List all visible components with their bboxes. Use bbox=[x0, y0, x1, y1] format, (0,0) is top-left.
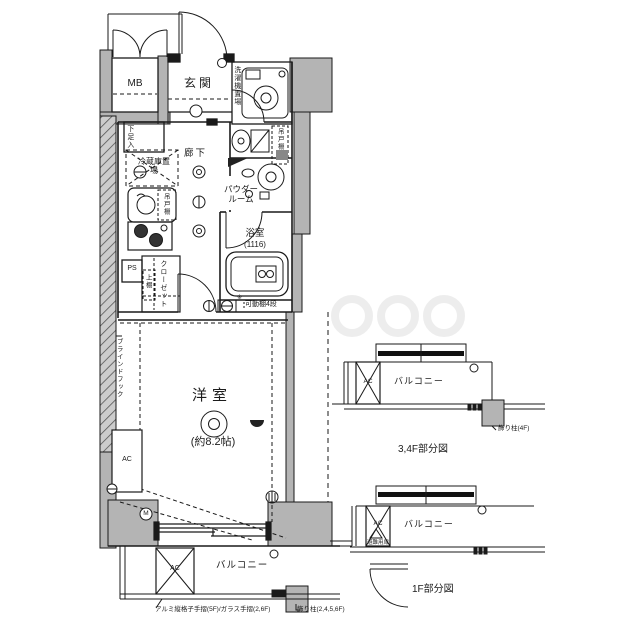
watermark bbox=[335, 299, 461, 333]
room-label-balcony: バルコニー bbox=[216, 561, 268, 572]
hatched-wall bbox=[100, 116, 116, 452]
room-label-bathroom: 浴室 bbox=[234, 229, 276, 240]
label-shoe-cabinet: 下足入 bbox=[126, 125, 134, 149]
label-fridge-space: 冷蔵庫置場 bbox=[138, 158, 170, 176]
room-label-western-room: 洋室 bbox=[180, 388, 244, 405]
label-meter-mark: M bbox=[142, 510, 150, 517]
mb-room bbox=[108, 14, 182, 112]
washing-machine-icon bbox=[242, 68, 288, 118]
partial-34f bbox=[332, 344, 545, 430]
stove-icon bbox=[128, 222, 172, 250]
room-label-mb: MB bbox=[112, 78, 158, 89]
note-handrail: アルミ縦格子手摺(5F)/ガラス手摺(2,6F) bbox=[155, 606, 270, 613]
label-pipe-space: PS bbox=[123, 265, 141, 273]
fig34-ac-label: AC bbox=[358, 378, 378, 385]
label-kitchen-hanging-cupboard: 吊戸棚 bbox=[162, 193, 169, 216]
toilet-icon bbox=[232, 130, 269, 152]
fig1-evacuation-door-note: 避難用扉 bbox=[367, 540, 389, 546]
floorplan-page: MB 玄関 洗濯機置場 下足入 廊下 冷蔵庫置場 吊戸棚 吊戸棚 パウダールーム… bbox=[0, 0, 640, 640]
bathtub-icon bbox=[226, 252, 288, 296]
tv-outlet-icon bbox=[250, 420, 264, 427]
fig34-caption: 3,4F部分図 bbox=[398, 444, 448, 455]
bathroom-area bbox=[226, 252, 288, 296]
label-toilet-hanging-cupboard: 吊戸棚 bbox=[276, 128, 283, 151]
fig1-ac-label: AC bbox=[368, 520, 388, 527]
label-laundry-space: 洗濯機置場 bbox=[233, 66, 241, 106]
label-movable-shelf: 可動棚4段 bbox=[245, 301, 277, 309]
entrance-area bbox=[168, 12, 234, 125]
room-label-closet: クローゼット bbox=[159, 260, 167, 308]
label-ac-outdoor: AC bbox=[165, 565, 185, 573]
sliding-window-icon bbox=[154, 522, 271, 540]
label-blind-hook: ブラインドフック bbox=[115, 338, 122, 398]
label-ac-indoor: AC bbox=[117, 456, 137, 464]
ceiling-light-icon bbox=[201, 411, 227, 437]
label-bathroom-size: (1116) bbox=[234, 241, 276, 250]
room-label-hallway: 廊下 bbox=[184, 149, 207, 160]
label-closet-upper-shelf: 上棚 bbox=[144, 274, 151, 289]
floorplan-drawing bbox=[0, 0, 640, 640]
laundry-area bbox=[232, 62, 292, 124]
balcony-door-icon bbox=[370, 564, 408, 607]
room-label-entrance: 玄関 bbox=[176, 77, 222, 90]
fig34-pillar-note: 飾り柱(4F) bbox=[498, 425, 529, 432]
fig34-balcony-label: バルコニー bbox=[394, 376, 444, 386]
fig1-balcony-label: バルコニー bbox=[404, 519, 454, 529]
label-western-room-size: (約8.2帖) bbox=[177, 436, 249, 448]
note-decorative-pillar: 飾り柱(2,4,5,6F) bbox=[297, 606, 345, 613]
fig1-caption: 1F部分図 bbox=[412, 584, 454, 595]
room-label-powder-room: パウダールーム bbox=[222, 185, 260, 204]
label-shelf-asterisk: ※ bbox=[237, 295, 242, 302]
